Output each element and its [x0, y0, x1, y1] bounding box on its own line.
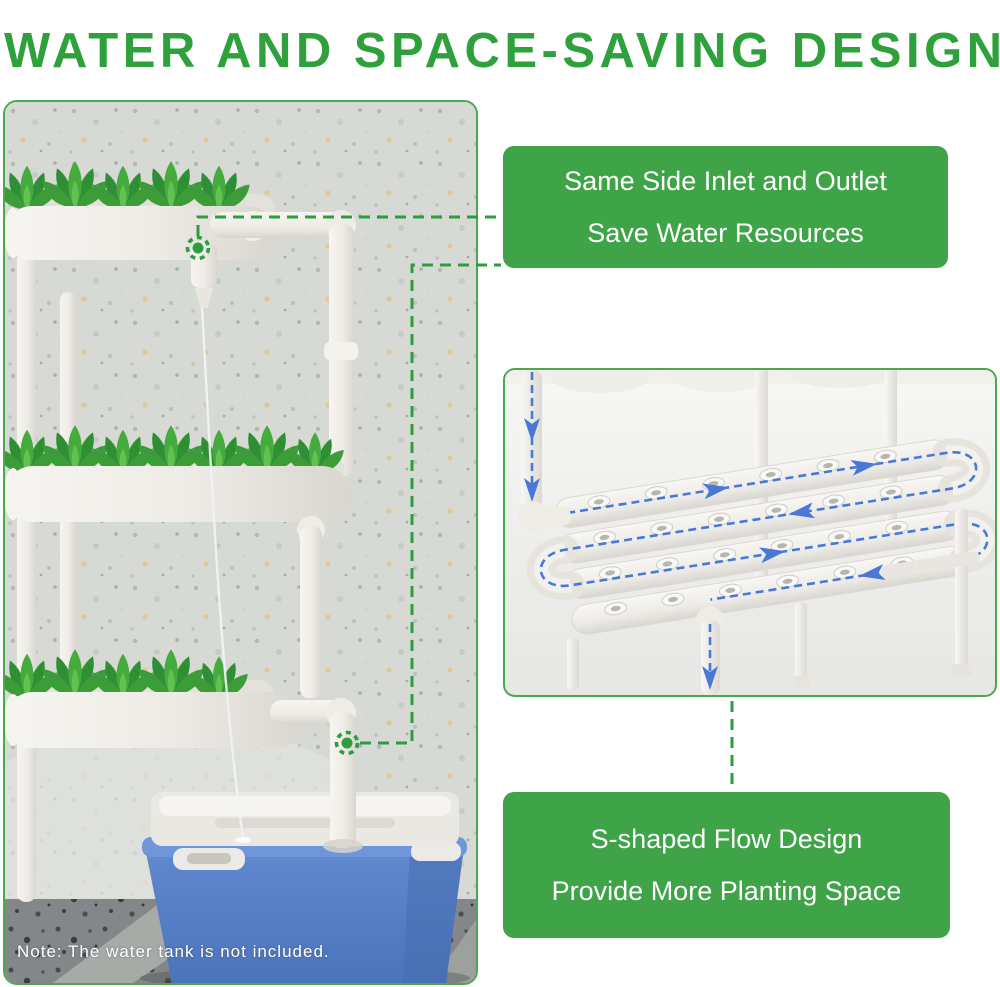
page-title: WATER AND SPACE-SAVING DESIGN: [4, 27, 1000, 76]
product-photo-drawing: [5, 102, 476, 983]
callout-line-2: Save Water Resources: [587, 207, 864, 259]
infographic-page: WATER AND SPACE-SAVING DESIGN: [0, 0, 1000, 987]
callout-line-1: Same Side Inlet and Outlet: [564, 155, 887, 207]
s-flow-inset-image: [503, 368, 997, 697]
s-flow-drawing: [505, 370, 995, 695]
callout-line-2: Provide More Planting Space: [552, 865, 902, 917]
tank-note: Note: The water tank is not included.: [17, 942, 330, 962]
callout-same-side-inlet-outlet: Same Side Inlet and Outlet Save Water Re…: [503, 146, 948, 268]
callout-s-shaped-flow: S-shaped Flow Design Provide More Planti…: [503, 792, 950, 938]
callout-line-1: S-shaped Flow Design: [591, 813, 863, 865]
product-photo: Note: The water tank is not included.: [3, 100, 478, 985]
